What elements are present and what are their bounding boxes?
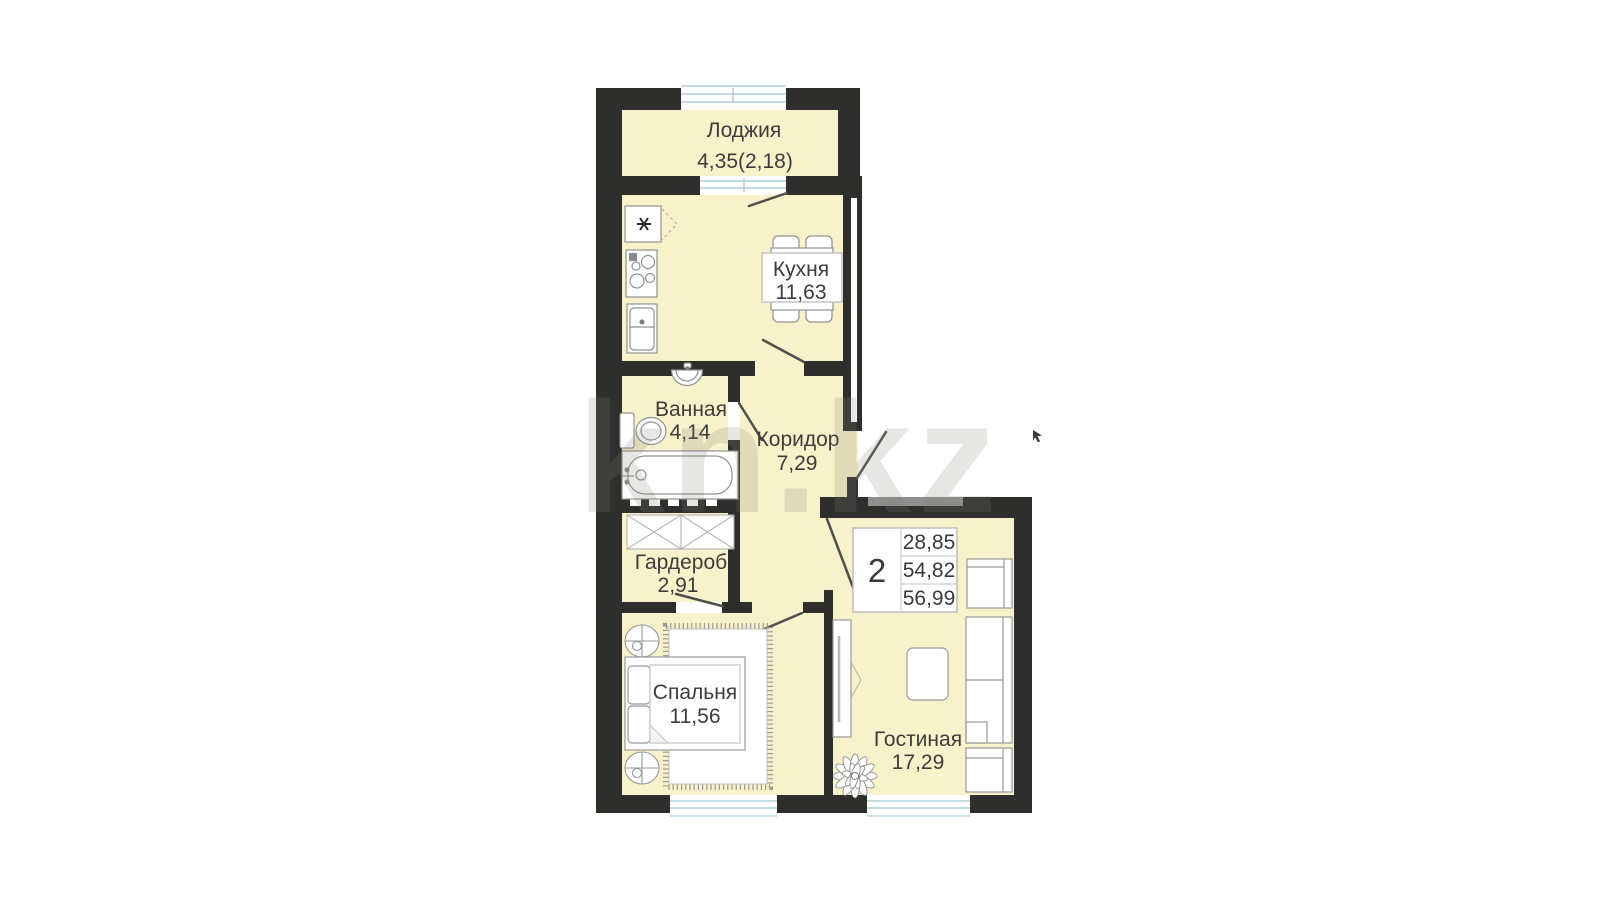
cursor-icon (1033, 430, 1042, 442)
sofa-icon (966, 617, 1012, 743)
total-area-value: 56,99 (903, 587, 956, 610)
wall-bedroom-top-2 (722, 602, 752, 613)
armchair-icon (966, 748, 1012, 792)
wall-bedroom-living (824, 590, 833, 813)
floorplan-canvas: 2 28,85 54,82 56,99 Лоджия 4,35(2,18) Ку… (0, 0, 1600, 900)
label-wardrobe: Гардероб (635, 551, 727, 574)
wall-loggia-divider-right (786, 176, 838, 195)
window-living (867, 795, 970, 816)
bedroom-label-box (650, 665, 740, 743)
rooms-count: 2 (868, 552, 886, 589)
pillow-icon (628, 706, 650, 743)
pillow-icon (628, 666, 650, 704)
wall-bottom-1 (596, 795, 670, 813)
wall-bottom-3 (970, 795, 1032, 813)
stove-icon (626, 250, 657, 297)
label-living: Гостиная (874, 728, 962, 751)
label-bedroom: Спальня (653, 681, 737, 704)
coffee-table-icon (907, 648, 948, 700)
area-loggia: 4,35(2,18) (697, 150, 793, 173)
watermark-text: kn.kz (577, 370, 1002, 546)
window-balcony-door (700, 176, 786, 195)
area-living: 17,29 (892, 751, 945, 774)
sofa-seat-icon (967, 559, 1012, 608)
kitchen-sink-icon (627, 304, 657, 353)
nightstand-icon (625, 625, 659, 657)
wall-bedroom-top-1 (622, 602, 676, 613)
area-kitchen: 11,63 (776, 281, 827, 304)
label-kitchen: Кухня (773, 258, 829, 281)
floorplan-page: 2 28,85 54,82 56,99 Лоджия 4,35(2,18) Ку… (0, 0, 1600, 900)
label-loggia: Лоджия (707, 119, 781, 142)
wall-bedroom-top-3 (803, 602, 824, 613)
nightstand-icon (625, 752, 659, 784)
wall-top-left (596, 88, 681, 110)
wall-living-right (1014, 497, 1032, 813)
usable-area-value: 54,82 (903, 559, 956, 582)
area-bedroom: 11,56 (670, 705, 721, 728)
wall-loggia-divider-left (622, 176, 701, 195)
area-wardrobe: 2,91 (658, 574, 699, 597)
window-bedroom (670, 795, 777, 816)
window-loggia-top (681, 86, 786, 110)
